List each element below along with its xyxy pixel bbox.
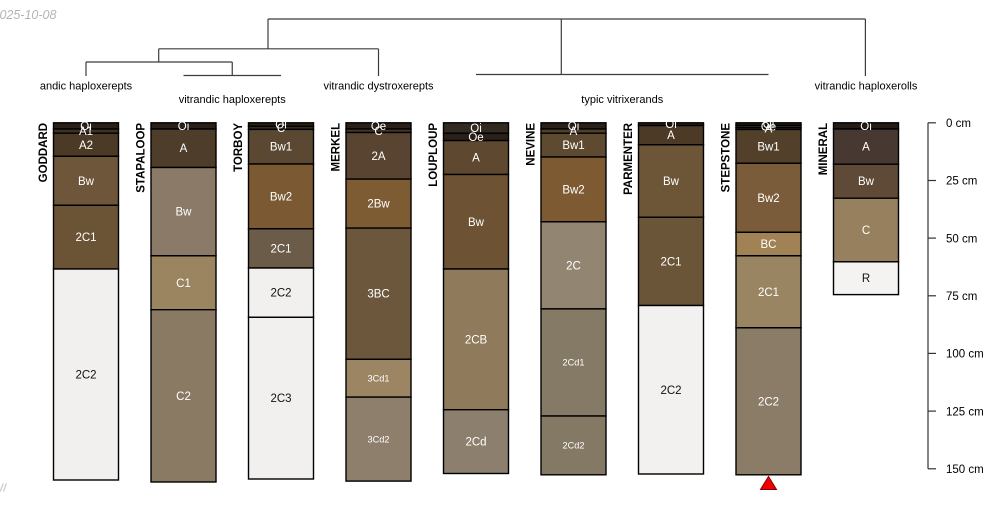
svg-text:A: A [570, 126, 578, 138]
svg-text:Bw2: Bw2 [757, 193, 779, 205]
svg-text:Bw2: Bw2 [562, 184, 584, 196]
svg-text:MERKEL: MERKEL [331, 123, 343, 172]
svg-text:C: C [277, 123, 285, 135]
svg-text:C: C [862, 225, 870, 237]
svg-text:Bw: Bw [468, 217, 485, 229]
svg-text:3Cd2: 3Cd2 [368, 434, 390, 444]
svg-text:75 cm: 75 cm [946, 291, 977, 303]
svg-text:2C2: 2C2 [270, 288, 291, 300]
svg-text:150 cm: 150 cm [946, 464, 984, 476]
svg-text:Oe: Oe [468, 132, 483, 144]
svg-text:PARMENTER: PARMENTER [623, 122, 635, 195]
svg-text:MINERAL: MINERAL [818, 123, 830, 175]
svg-text:2C2: 2C2 [758, 396, 779, 408]
svg-text:A: A [667, 130, 675, 142]
svg-text:C: C [374, 126, 382, 138]
svg-text:A2: A2 [79, 140, 93, 152]
svg-text:125 cm: 125 cm [946, 406, 984, 418]
svg-text:Bw1: Bw1 [562, 140, 584, 152]
svg-text:2C3: 2C3 [270, 393, 291, 405]
svg-text:2A: 2A [371, 151, 385, 163]
svg-text:100 cm: 100 cm [946, 349, 984, 361]
svg-text:2Cd1: 2Cd1 [563, 358, 585, 368]
svg-text:25 cm: 25 cm [946, 176, 977, 188]
svg-text:2CB: 2CB [465, 334, 488, 346]
svg-text:2C1: 2C1 [660, 256, 681, 268]
svg-text:A: A [765, 124, 773, 136]
svg-text:2C: 2C [566, 260, 581, 272]
svg-text:Oi: Oi [178, 121, 190, 133]
svg-text:Bw: Bw [858, 176, 875, 188]
svg-text:Bw: Bw [663, 176, 680, 188]
svg-text:2C1: 2C1 [270, 243, 291, 255]
svg-text:2Cd: 2Cd [465, 437, 486, 449]
svg-text:Bw: Bw [176, 207, 193, 219]
svg-text:LOUPLOUP: LOUPLOUP [428, 123, 440, 187]
svg-text:0 cm: 0 cm [946, 118, 971, 130]
svg-text:TORBOY: TORBOY [233, 123, 245, 172]
svg-text:andic haploxerepts: andic haploxerepts [40, 81, 133, 93]
svg-text:3Cd1: 3Cd1 [368, 373, 390, 383]
svg-text:Oi: Oi [860, 121, 872, 133]
svg-text:STAPALOOP: STAPALOOP [136, 123, 148, 193]
svg-text:vitrandic haploxerolls: vitrandic haploxerolls [815, 81, 918, 93]
svg-text:A: A [862, 142, 870, 154]
svg-text:BC: BC [761, 239, 777, 251]
svg-text:A: A [180, 143, 188, 155]
svg-text:GODDARD: GODDARD [38, 123, 50, 182]
svg-text:Bw1: Bw1 [270, 142, 292, 154]
svg-text:2C2: 2C2 [75, 370, 96, 382]
svg-text:A1: A1 [79, 126, 93, 138]
svg-text:2C2: 2C2 [660, 385, 681, 397]
svg-text:2Cd2: 2Cd2 [563, 441, 585, 451]
svg-text:50 cm: 50 cm [946, 233, 977, 245]
svg-text:typic vitrixerands: typic vitrixerands [581, 94, 663, 106]
svg-text:2025-10-08: 2025-10-08 [0, 8, 56, 22]
svg-text:3BC: 3BC [367, 289, 389, 301]
svg-text:2C1: 2C1 [75, 232, 96, 244]
svg-text:2C1: 2C1 [758, 287, 779, 299]
svg-text:Bw: Bw [78, 176, 95, 188]
svg-text:vitrandic haploxerepts: vitrandic haploxerepts [179, 94, 287, 106]
svg-text:2Bw: 2Bw [367, 199, 390, 211]
svg-text:vitrandic dystroxerepts: vitrandic dystroxerepts [323, 81, 434, 93]
svg-text:A: A [472, 153, 480, 165]
svg-text:NEVINE: NEVINE [526, 123, 538, 166]
svg-text:STEPSTONE: STEPSTONE [721, 123, 733, 193]
svg-text:C2: C2 [176, 391, 191, 403]
svg-text:Bw2: Bw2 [270, 191, 292, 203]
svg-text:C1: C1 [176, 278, 191, 290]
svg-text:Bw1: Bw1 [757, 141, 779, 153]
svg-text:R: R [862, 273, 870, 285]
